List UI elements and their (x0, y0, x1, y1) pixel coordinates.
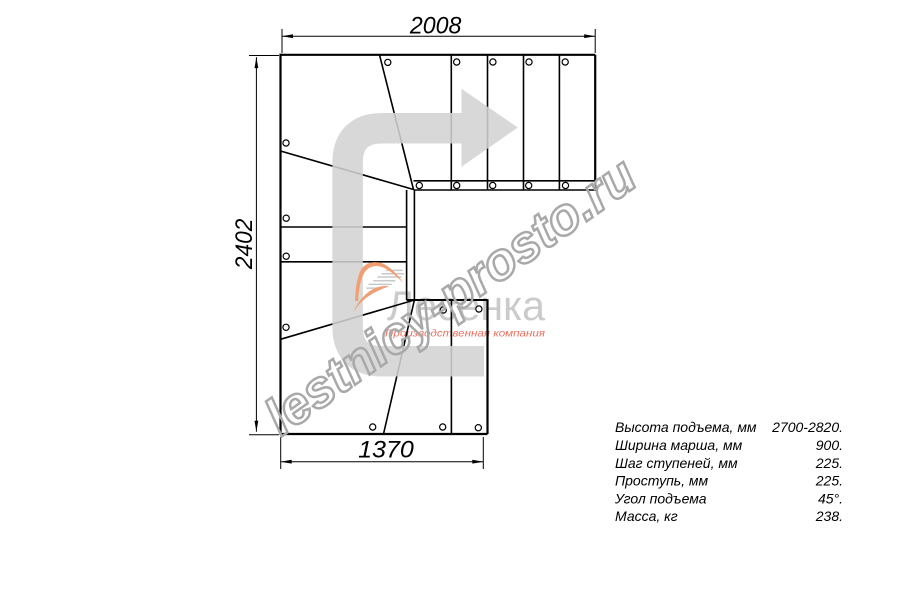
svg-text:238.: 238. (815, 508, 843, 524)
svg-text:225.: 225. (815, 455, 843, 471)
svg-text:Угол подъема: Угол подъема (614, 490, 707, 506)
svg-text:1370: 1370 (358, 436, 414, 463)
svg-text:Шаг ступеней, мм: Шаг ступеней, мм (615, 455, 738, 471)
svg-text:Проступь, мм: Проступь, мм (615, 473, 709, 489)
svg-text:Масса, кг: Масса, кг (615, 508, 678, 524)
svg-text:225.: 225. (815, 473, 843, 489)
svg-text:Высота подъема, мм: Высота подъема, мм (615, 419, 757, 435)
svg-text:900.: 900. (816, 437, 843, 453)
svg-text:45°.: 45°. (818, 490, 843, 506)
svg-text:2008: 2008 (409, 12, 462, 39)
svg-text:2700-2820.: 2700-2820. (771, 419, 843, 435)
svg-text:2402: 2402 (231, 218, 258, 270)
svg-text:Ширина марша, мм: Ширина марша, мм (615, 437, 743, 453)
